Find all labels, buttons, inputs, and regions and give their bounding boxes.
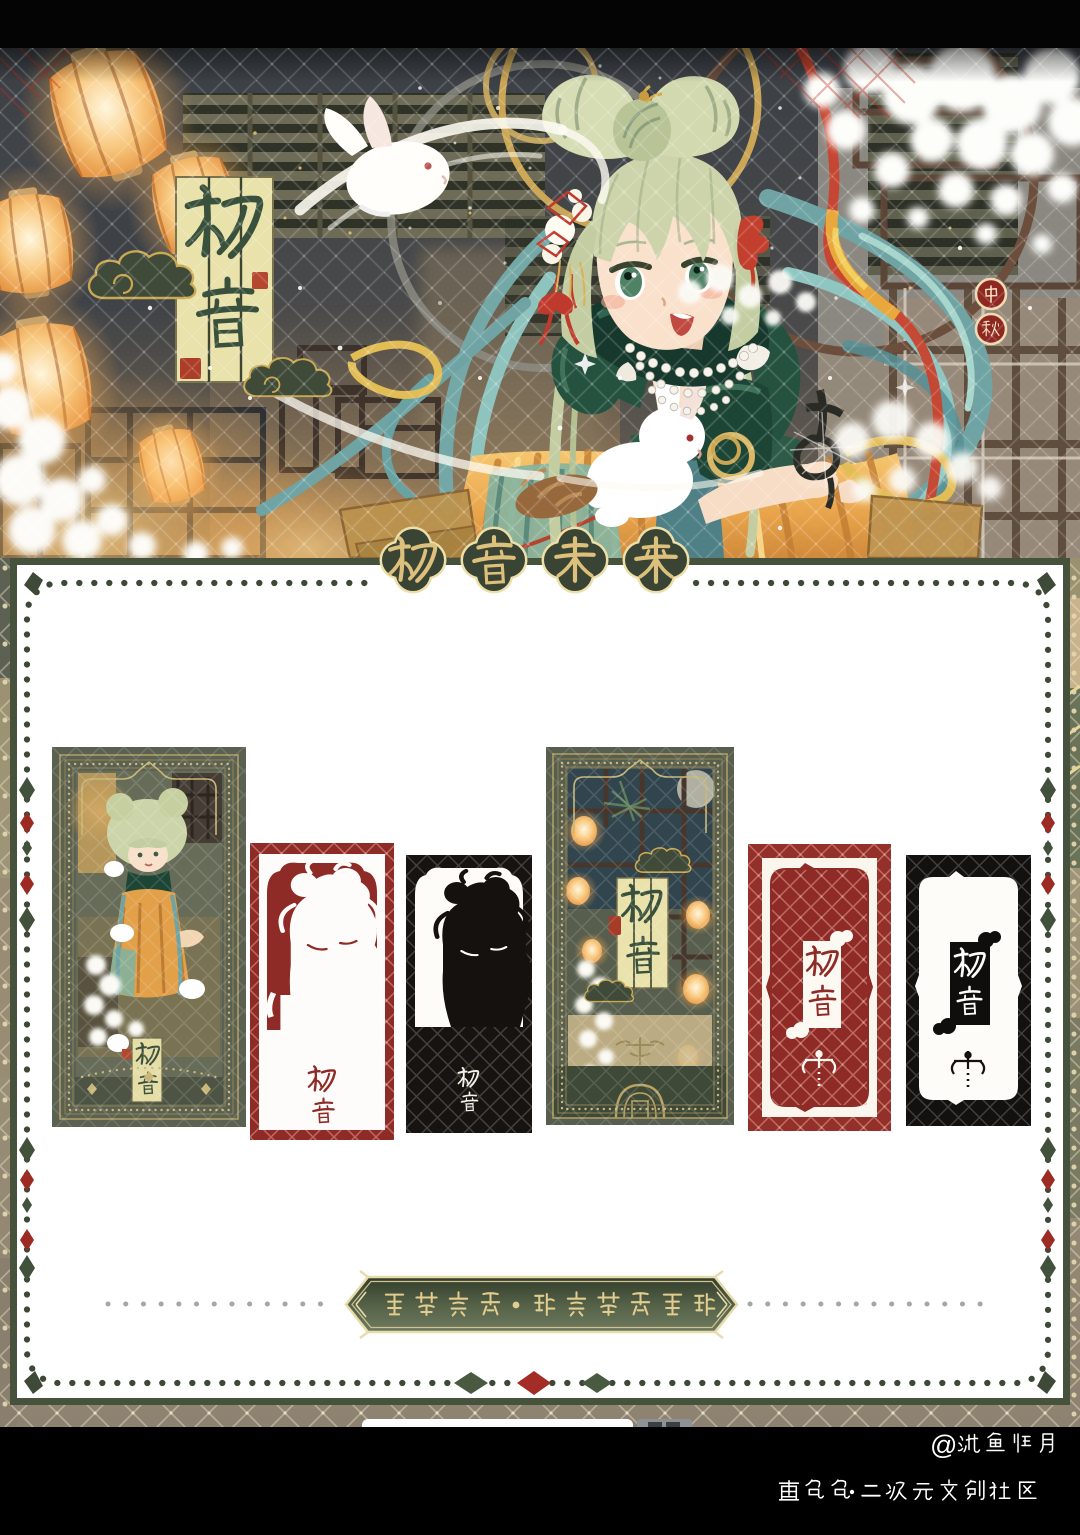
svg-text:@: @	[930, 1430, 957, 1460]
